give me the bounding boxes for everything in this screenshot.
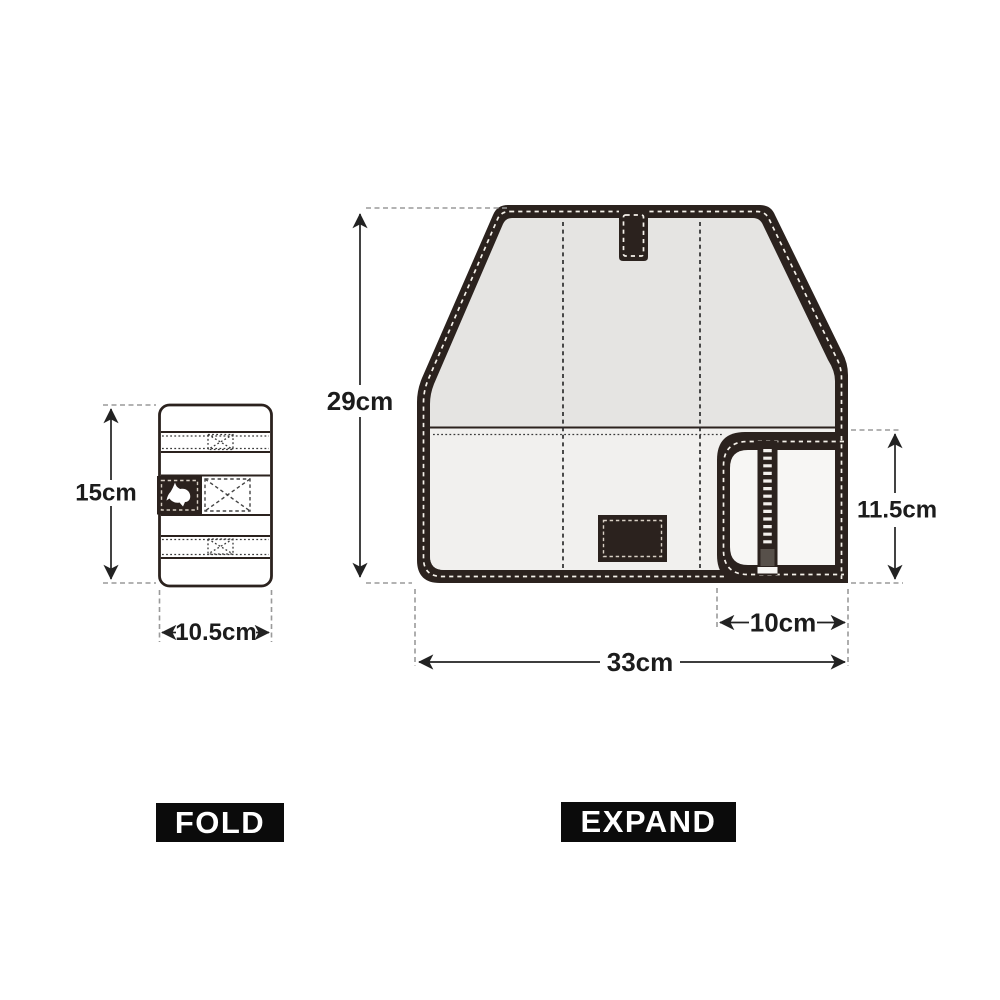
product-dimension-diagram: 15cm 10.5cm	[0, 0, 1000, 1000]
pocket-panel	[730, 450, 835, 565]
fold-height-label: 15cm	[75, 480, 136, 507]
pocket-width-label: 10cm	[750, 608, 817, 638]
zipper-pocket	[717, 432, 848, 583]
expand-caption-text: EXPAND	[581, 804, 717, 840]
fold-diagram: 15cm 10.5cm	[75, 405, 271, 646]
expand-height-label: 29cm	[327, 386, 394, 416]
fold-caption-text: FOLD	[175, 805, 265, 841]
hang-tab	[619, 210, 648, 261]
expand-diagram: 29cm 33cm 10cm 11.5cm	[327, 205, 937, 677]
expand-caption: EXPAND	[561, 802, 736, 842]
pocket-height-label: 11.5cm	[857, 497, 937, 524]
expand-width-label: 33cm	[607, 647, 674, 677]
zipper-pull	[761, 549, 775, 566]
brand-patch	[598, 515, 667, 562]
pocket-width-dimension: 10cm	[717, 588, 845, 638]
fold-width-label: 10.5cm	[175, 619, 256, 646]
pocket-height-dimension: 11.5cm	[851, 430, 937, 583]
fold-height-dimension: 15cm	[75, 405, 156, 583]
zipper	[758, 441, 778, 575]
fold-width-dimension: 10.5cm	[160, 590, 272, 646]
diagram-canvas: 15cm 10.5cm	[0, 0, 1000, 1000]
fold-caption: FOLD	[156, 803, 284, 842]
fold-logo-patch	[157, 476, 202, 515]
